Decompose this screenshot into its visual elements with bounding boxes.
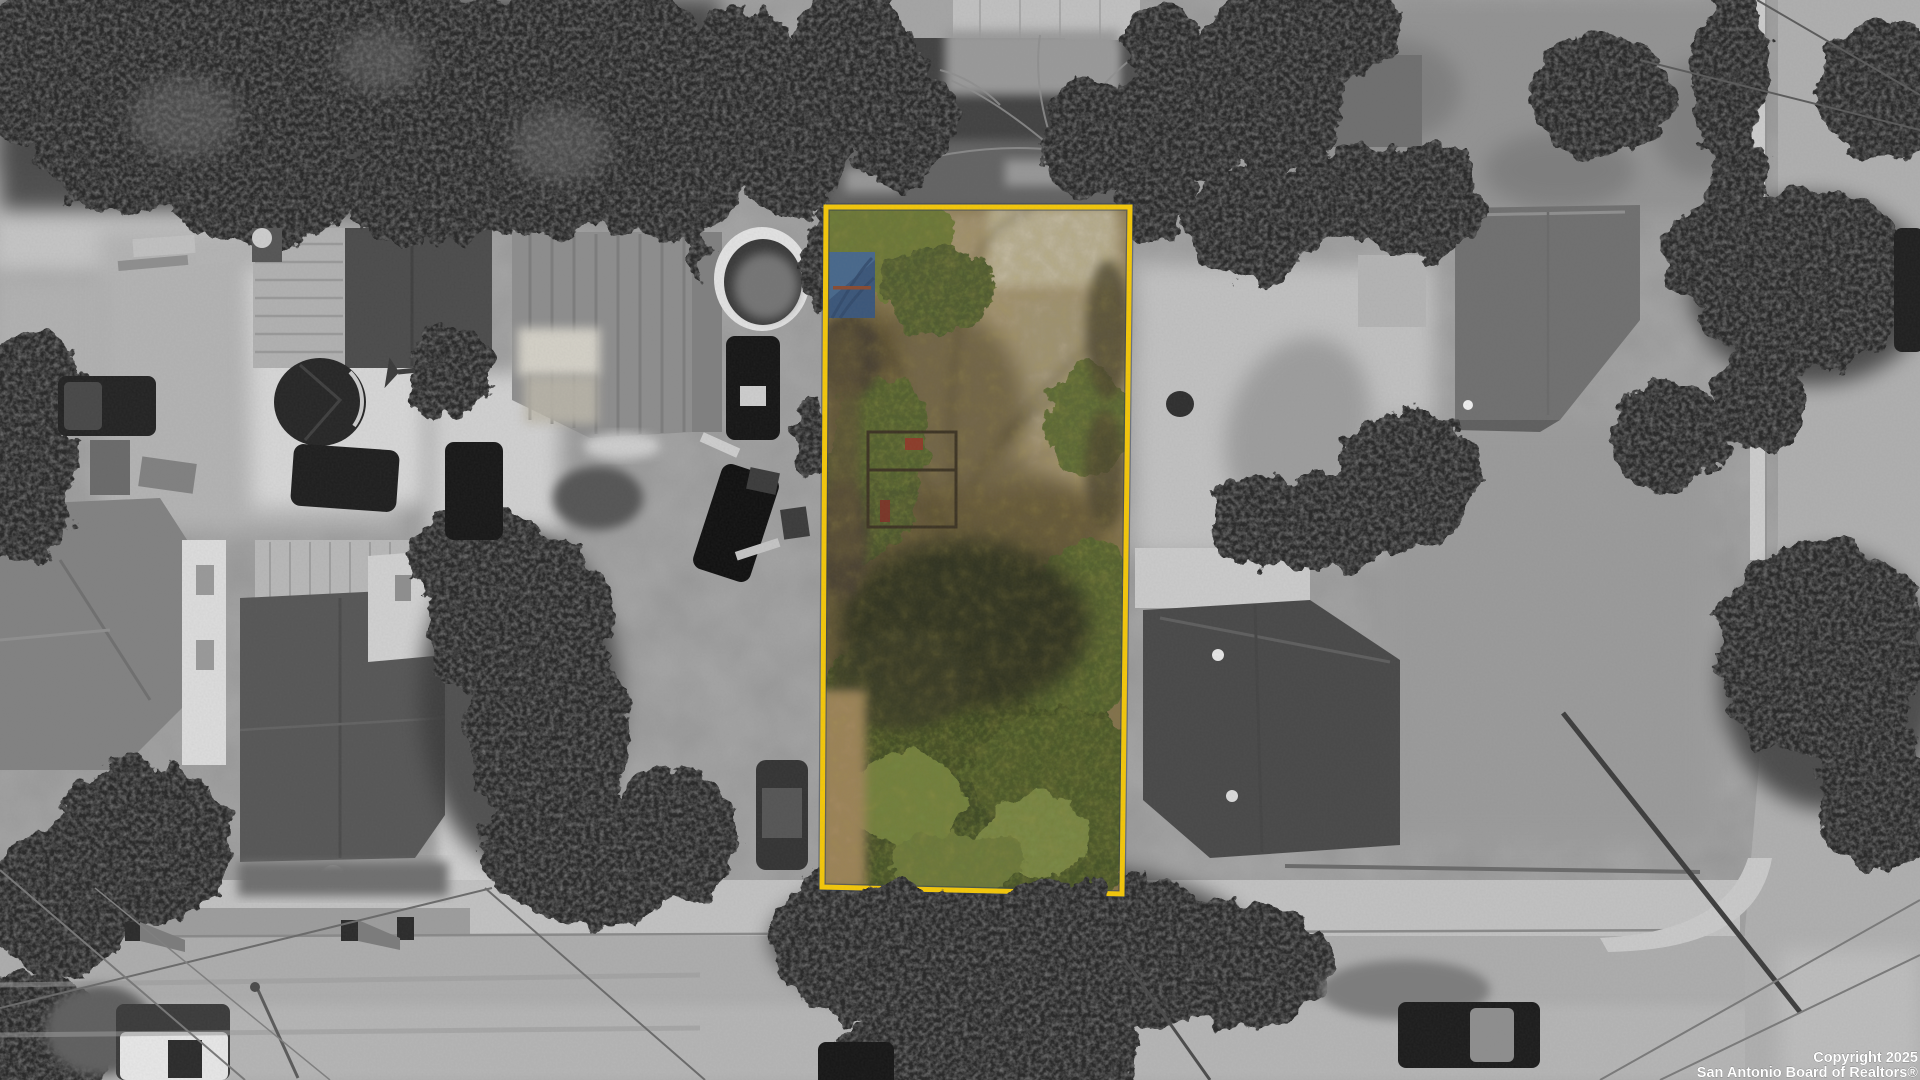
svg-text:San Antonio Board of Realtors®: San Antonio Board of Realtors®	[1697, 1065, 1919, 1080]
svg-text:Copyright 2025: Copyright 2025	[1813, 1050, 1918, 1066]
